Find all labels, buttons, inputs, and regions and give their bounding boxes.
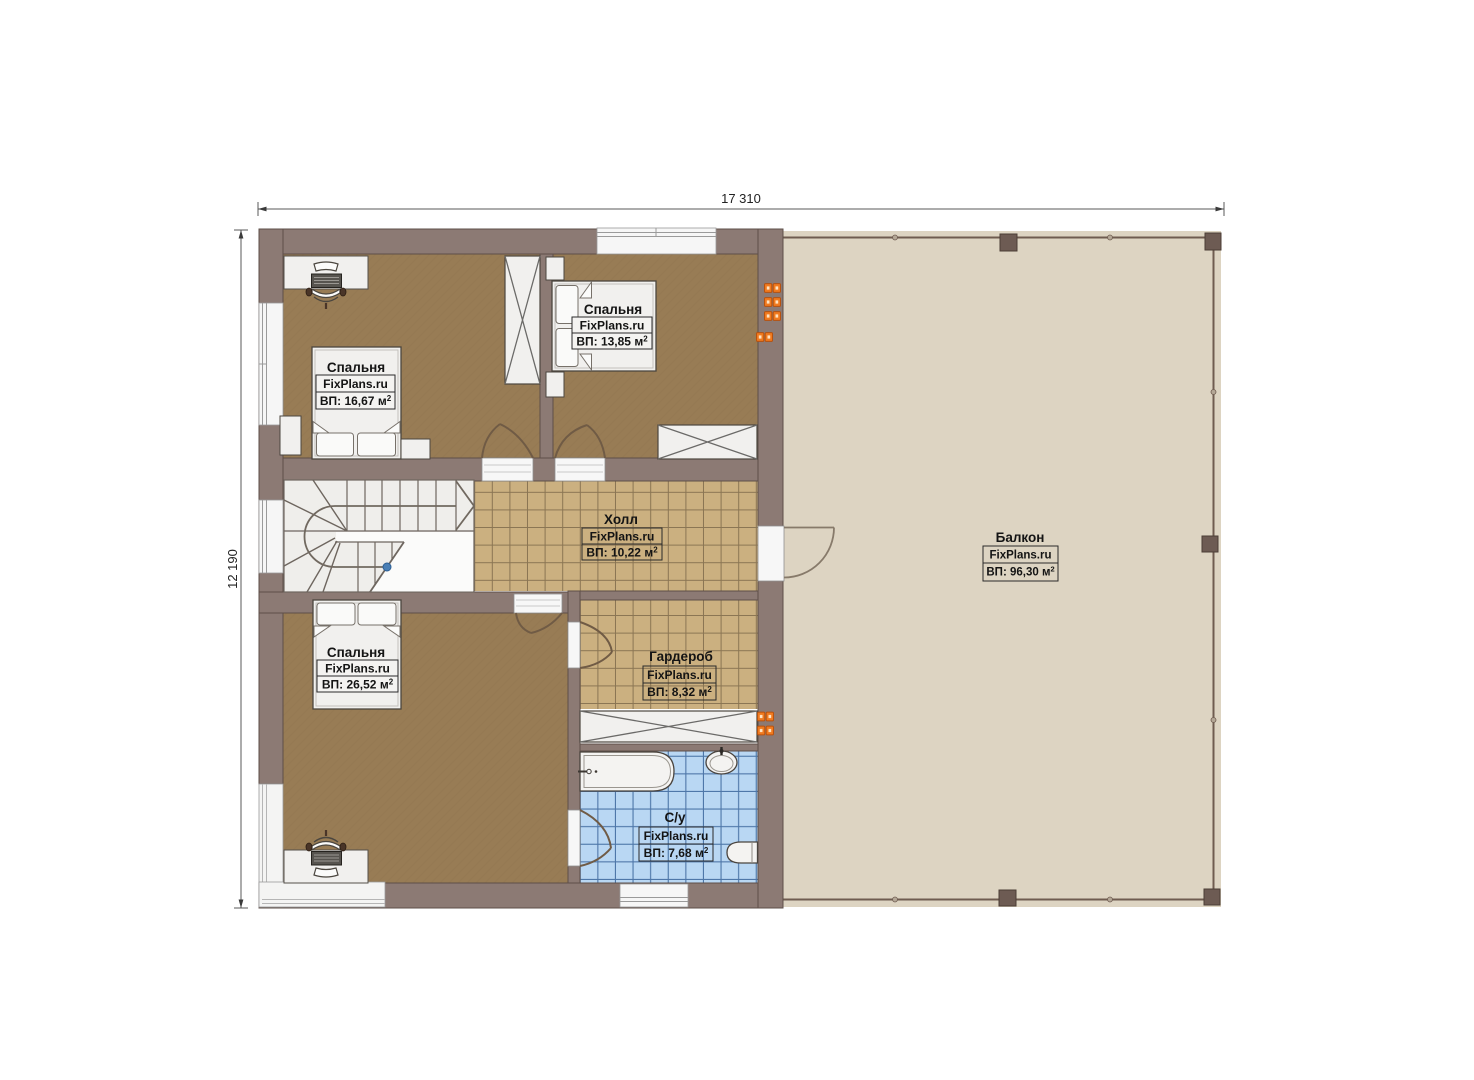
svg-text:12 190: 12 190 bbox=[225, 549, 240, 589]
svg-text:ВП: 96,30 м2: ВП: 96,30 м2 bbox=[986, 565, 1054, 579]
svg-text:FixPlans.ru: FixPlans.ru bbox=[580, 319, 645, 333]
svg-text:ВП: 7,68 м2: ВП: 7,68 м2 bbox=[644, 846, 709, 860]
svg-text:Спальня: Спальня bbox=[327, 360, 385, 375]
svg-text:Балкон: Балкон bbox=[996, 530, 1045, 545]
svg-text:FixPlans.ru: FixPlans.ru bbox=[325, 662, 390, 676]
svg-text:ВП: 8,32 м2: ВП: 8,32 м2 bbox=[647, 685, 712, 699]
svg-text:Гардероб: Гардероб bbox=[649, 649, 713, 664]
svg-text:С/у: С/у bbox=[664, 810, 686, 825]
svg-text:ВП: 26,52 м2: ВП: 26,52 м2 bbox=[322, 678, 394, 692]
svg-text:ВП: 16,67 м2: ВП: 16,67 м2 bbox=[320, 394, 392, 408]
svg-text:Спальня: Спальня bbox=[327, 645, 385, 660]
svg-text:FixPlans.ru: FixPlans.ru bbox=[323, 377, 388, 391]
svg-text:FixPlans.ru: FixPlans.ru bbox=[990, 550, 1052, 562]
svg-text:FixPlans.ru: FixPlans.ru bbox=[590, 530, 655, 544]
svg-text:FixPlans.ru: FixPlans.ru bbox=[644, 829, 709, 843]
svg-text:ВП: 13,85 м2: ВП: 13,85 м2 bbox=[576, 335, 648, 349]
svg-text:17 310: 17 310 bbox=[721, 191, 761, 206]
svg-text:FixPlans.ru: FixPlans.ru bbox=[647, 668, 712, 682]
svg-text:Холл: Холл bbox=[604, 512, 638, 527]
svg-text:ВП: 10,22 м2: ВП: 10,22 м2 bbox=[586, 546, 658, 560]
svg-text:Спальня: Спальня bbox=[584, 302, 642, 317]
